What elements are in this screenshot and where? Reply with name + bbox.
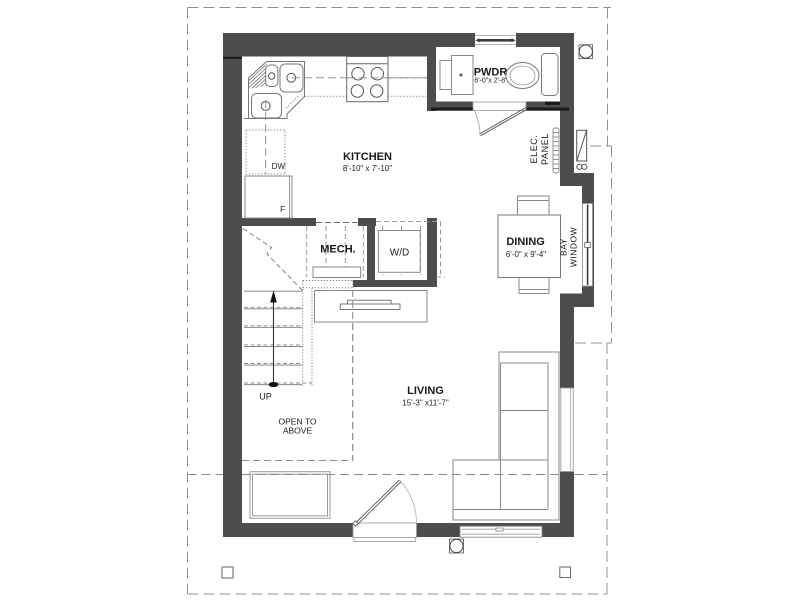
- svg-text:ELEC.: ELEC.: [529, 134, 539, 163]
- svg-text:UP: UP: [259, 392, 272, 402]
- svg-text:PANEL: PANEL: [540, 133, 550, 165]
- svg-text:F: F: [280, 205, 285, 214]
- svg-text:W/D: W/D: [390, 248, 409, 259]
- svg-text:DW: DW: [272, 162, 286, 171]
- svg-text:WINDOW: WINDOW: [569, 227, 579, 267]
- svg-text:6'-0" x 9'-4": 6'-0" x 9'-4": [506, 250, 546, 259]
- svg-text:BAY: BAY: [559, 238, 569, 256]
- svg-text:DINING: DINING: [506, 236, 545, 248]
- svg-text:ABOVE: ABOVE: [283, 426, 313, 436]
- svg-text:LIVING: LIVING: [407, 385, 444, 397]
- svg-text:KITCHEN: KITCHEN: [343, 151, 392, 163]
- svg-text:MECH.: MECH.: [320, 244, 355, 256]
- svg-text:15'-3" x11'-7": 15'-3" x11'-7": [402, 399, 449, 408]
- svg-text:6'-0"x 2'-8": 6'-0"x 2'-8": [474, 78, 508, 85]
- svg-text:8'-10" x 7'-10": 8'-10" x 7'-10": [343, 164, 392, 173]
